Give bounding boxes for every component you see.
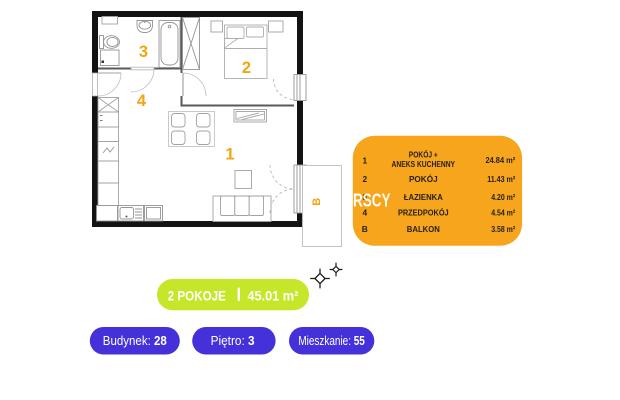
svg-text:1: 1 bbox=[362, 156, 367, 166]
svg-text:2: 2 bbox=[242, 59, 251, 77]
svg-text:Piętro: 3: Piętro: 3 bbox=[211, 334, 255, 348]
svg-text:11.43 m²: 11.43 m² bbox=[487, 174, 515, 184]
svg-text:1: 1 bbox=[225, 146, 234, 164]
svg-text:RSCY: RSCY bbox=[353, 190, 391, 211]
svg-text:B: B bbox=[311, 198, 323, 206]
svg-text:4.20 m²: 4.20 m² bbox=[491, 192, 515, 202]
svg-text:24.84 m²: 24.84 m² bbox=[486, 155, 516, 165]
svg-text:2 POKOJE: 2 POKOJE bbox=[168, 288, 226, 303]
svg-text:POKÓJ: POKÓJ bbox=[409, 173, 438, 184]
svg-text:ŁAZIENKA: ŁAZIENKA bbox=[404, 192, 443, 202]
svg-text:4.54 m²: 4.54 m² bbox=[491, 207, 515, 217]
svg-text:4: 4 bbox=[137, 92, 147, 110]
svg-text:3: 3 bbox=[139, 43, 148, 61]
svg-text:Mieszkanie: 55: Mieszkanie: 55 bbox=[298, 334, 365, 348]
svg-text:BALKON: BALKON bbox=[407, 224, 440, 234]
svg-text:45.01 m²: 45.01 m² bbox=[247, 288, 298, 303]
svg-text:PRZEDPOKÓJ: PRZEDPOKÓJ bbox=[398, 206, 449, 217]
svg-text:B: B bbox=[362, 224, 368, 234]
svg-text:Budynek: 28: Budynek: 28 bbox=[103, 334, 167, 348]
svg-text:ANEKS KUCHENNY: ANEKS KUCHENNY bbox=[392, 159, 456, 169]
svg-text:3.58 m²: 3.58 m² bbox=[491, 224, 515, 234]
svg-text:2: 2 bbox=[362, 174, 367, 184]
